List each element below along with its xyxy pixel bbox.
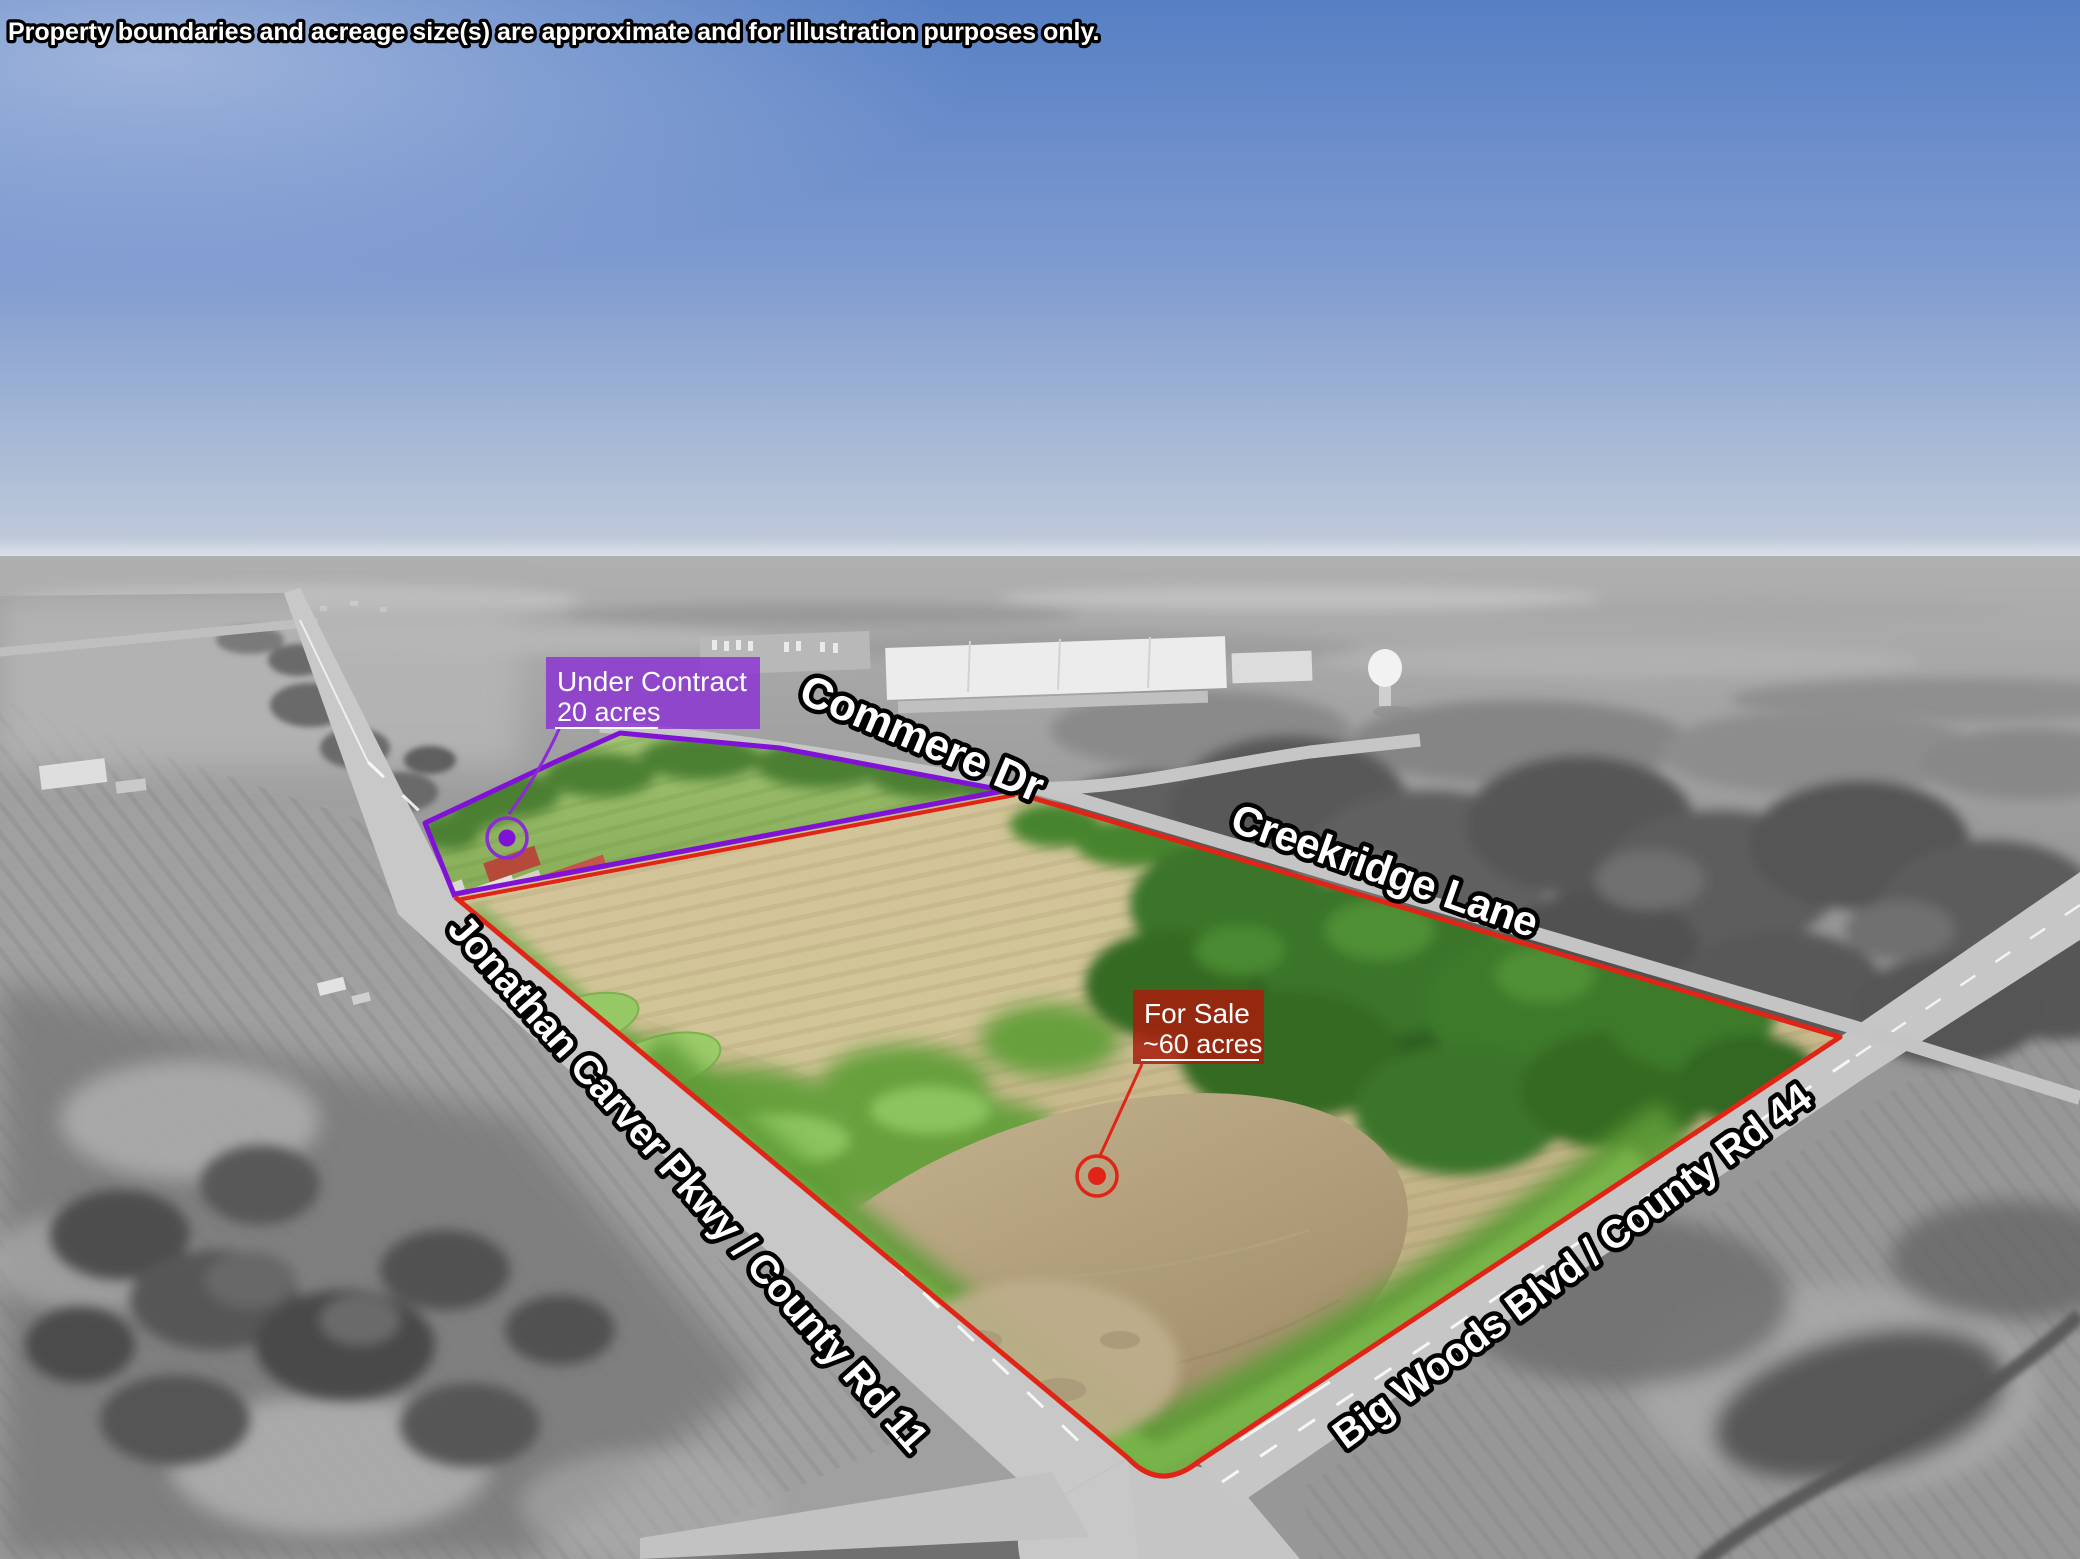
for-sale-title: For Sale	[1144, 998, 1250, 1029]
under-contract-marker-dot	[499, 830, 516, 847]
water-tower-shadow	[1373, 706, 1413, 718]
under-contract-title: Under Contract	[557, 666, 747, 697]
disclaimer: Property boundaries and acreage size(s) …	[8, 18, 1099, 46]
for-sale-label-box: For Sale ~60 acres	[1133, 990, 1264, 1064]
water-tower-tank	[1368, 649, 1402, 687]
warehouse-annex	[1232, 651, 1313, 684]
for-sale-marker-dot	[1088, 1167, 1106, 1185]
under-contract-acreage: 20 acres	[557, 697, 661, 727]
for-sale-acreage: ~60 acres	[1143, 1029, 1262, 1059]
under-contract-label-box: Under Contract 20 acres	[546, 657, 760, 729]
scene: Under Contract 20 acres For Sale ~60 acr…	[0, 0, 2080, 1559]
sky-corner-light	[0, 0, 2080, 585]
aerial-listing-photo: Under Contract 20 acres For Sale ~60 acr…	[0, 0, 2080, 1559]
